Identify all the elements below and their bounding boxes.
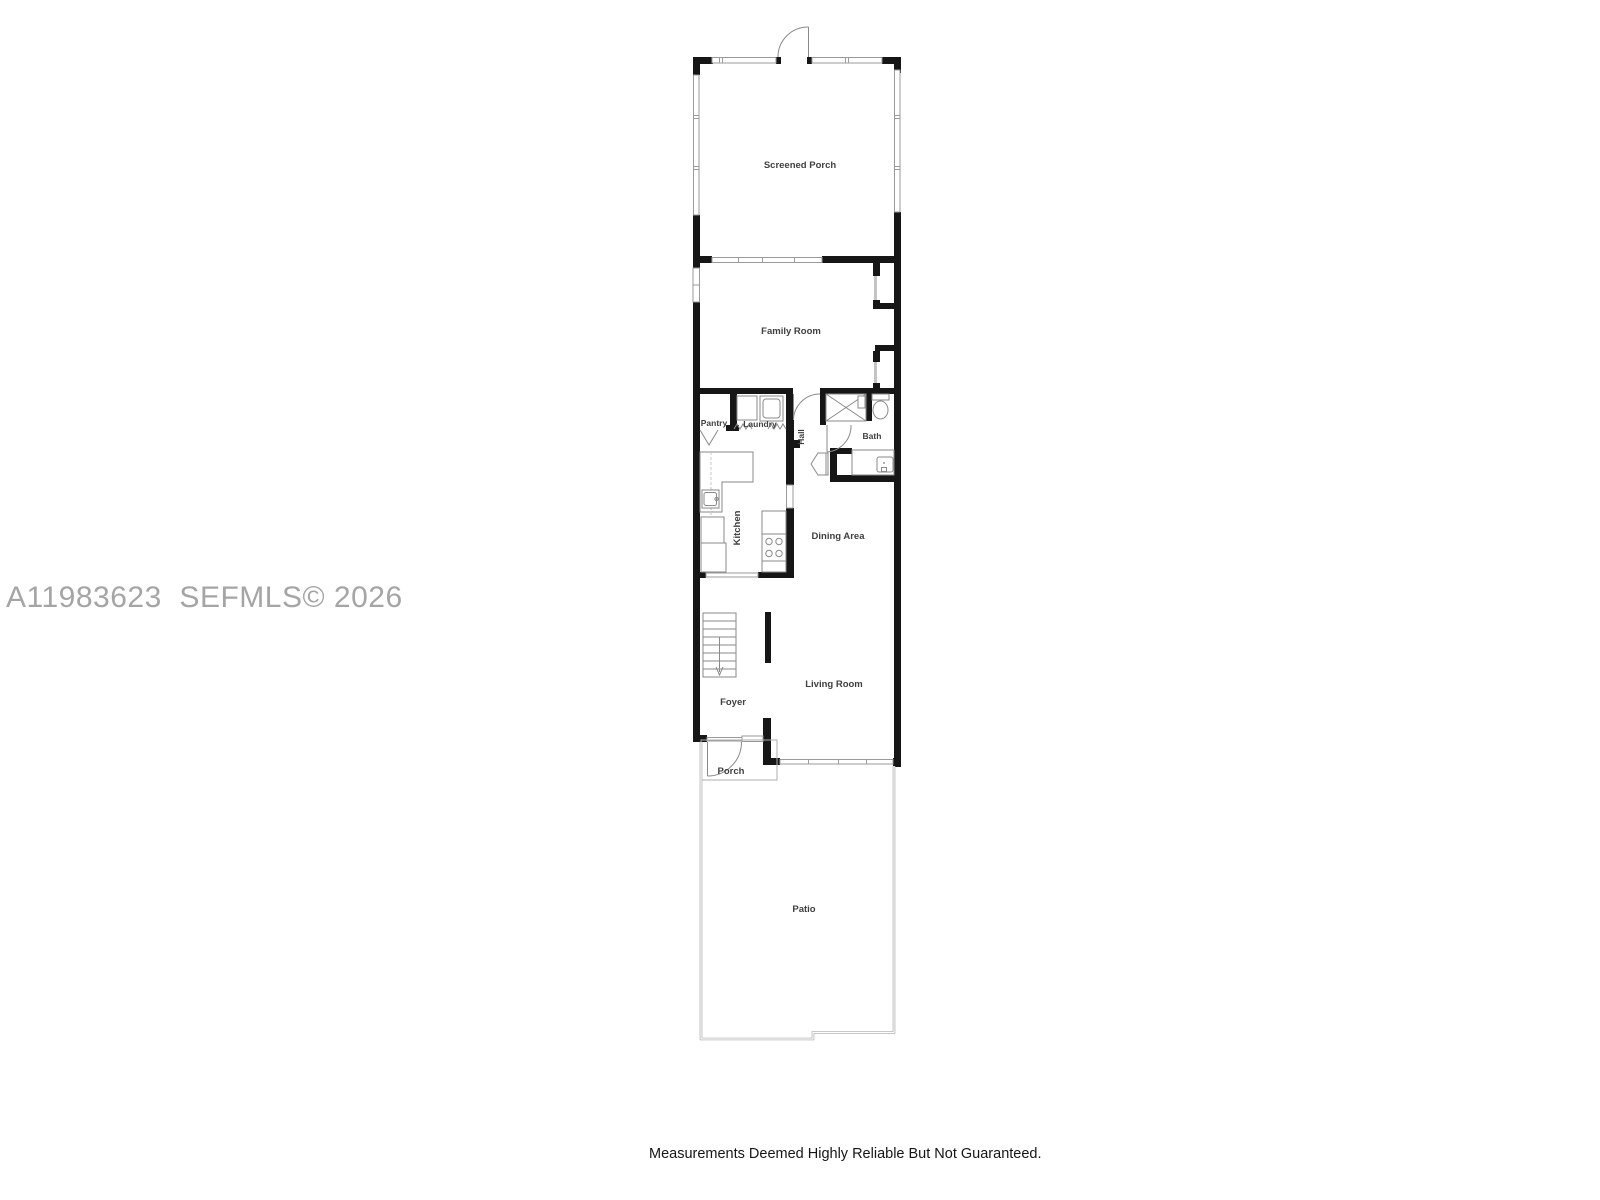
room-label-bath: Bath [863,431,882,441]
hall-closet [811,453,828,475]
washer [737,396,757,420]
sidelight-window [742,736,763,742]
room-label-foyer: Foyer [720,697,746,708]
toilet [872,394,889,419]
screen-wall [812,58,882,64]
room-label-laundry: Laundry [743,419,777,429]
bath-vanity-sink [852,450,894,475]
room-label-screened-porch: Screened Porch [764,160,837,171]
room-label-dining-area: Dining Area [812,531,866,542]
closet-door [874,276,877,300]
stove [762,534,786,561]
porch-entry-door-icon [778,27,809,57]
room-label-patio: Patio [792,904,815,915]
room-label-pantry: Pantry [701,418,728,428]
room-label-kitchen: Kitchen [732,510,743,545]
room-label-living-room: Living Room [805,679,863,690]
bath-door-icon [827,425,851,452]
cased-opening [706,573,758,577]
closet-door [874,362,877,383]
laundry-fixtures [737,396,783,421]
kitchen-sink [702,490,719,508]
base-cabinet [701,543,726,572]
hall-door-icon [794,394,821,420]
sliding-glass-door [780,760,893,765]
screen-wall [712,58,776,64]
screen-wall [694,75,700,215]
room-label-family-room: Family Room [761,326,821,337]
room-label-hall: Hall [796,429,806,445]
pass-through-opening [787,485,794,508]
kitchen-fixtures [700,452,786,572]
floor-plan-page: { "watermark": "A11983623 SEFMLS© 2026",… [0,0,1600,1200]
screen-wall [895,70,901,212]
disclaimer-text: Measurements Deemed Highly Reliable But … [649,1146,1042,1162]
refrigerator [701,517,724,543]
sliding-glass-door [712,258,822,263]
shower [826,394,866,421]
room-label-porch: Porch [718,766,745,777]
stairs [703,613,736,677]
patio-outline [701,742,894,1039]
floor-plan: Screened Porch Family Room Pantry Laundr… [0,0,1600,1200]
pantry-bifold-door-icon [700,430,718,445]
